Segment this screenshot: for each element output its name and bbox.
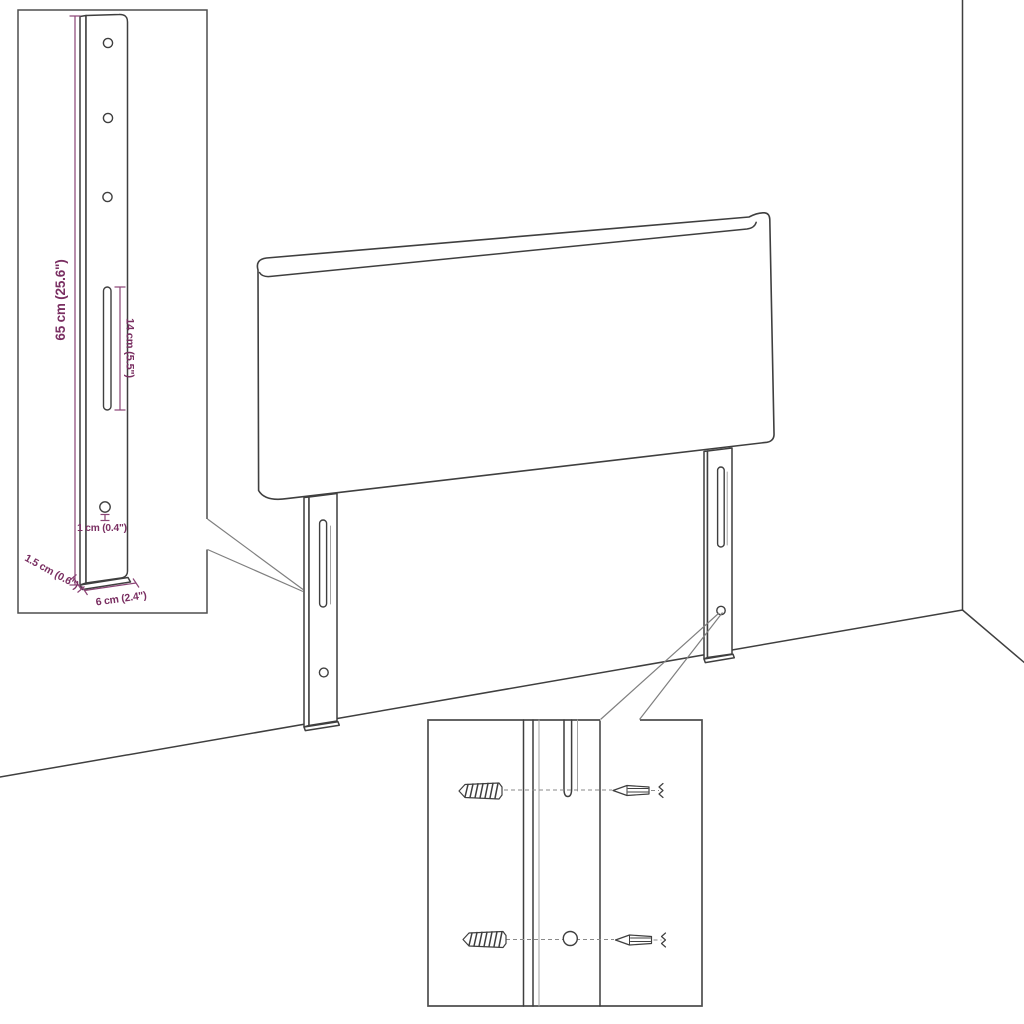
dim-slot-label: 14 cm (5.5") xyxy=(124,318,136,378)
bracket-hole-top xyxy=(103,38,112,47)
detail-callout-left xyxy=(601,613,720,720)
bracket-hole-middle xyxy=(103,113,112,122)
right-leg-slot xyxy=(718,467,725,547)
bracket-slot xyxy=(104,287,112,410)
dim-hole-label: 1 cm (0.4") xyxy=(77,523,127,534)
headboard-assembly-diagram: 65 cm (25.6") 14 cm (5.5") 1 cm (0.4") 1… xyxy=(0,0,1024,1024)
detail-callout-right xyxy=(640,613,723,720)
headboard-left-leg xyxy=(304,494,339,731)
dim-height-label: 65 cm (25.6") xyxy=(53,259,68,340)
bracket-detail-inset: 65 cm (25.6") 14 cm (5.5") 1 cm (0.4") 1… xyxy=(18,10,207,613)
detail-background xyxy=(428,720,702,1006)
bracket-side-face xyxy=(80,16,86,586)
bracket-hole-lower xyxy=(103,192,112,201)
floor-line-right xyxy=(963,610,1024,664)
diagram-canvas: 65 cm (25.6") 14 cm (5.5") 1 cm (0.4") 1… xyxy=(0,0,1024,1024)
inset-callout-upper xyxy=(208,519,304,590)
left-leg-screw-hole xyxy=(319,668,328,677)
detail-screw-hole xyxy=(563,932,577,946)
headboard-panel xyxy=(257,213,774,500)
headboard-outline xyxy=(257,213,774,500)
bracket-small-hole xyxy=(100,502,110,512)
inset-callout-lines xyxy=(208,519,304,592)
mounting-detail-inset xyxy=(428,720,702,1006)
inset-callout-lower xyxy=(208,550,304,592)
left-leg-slot xyxy=(320,520,327,607)
